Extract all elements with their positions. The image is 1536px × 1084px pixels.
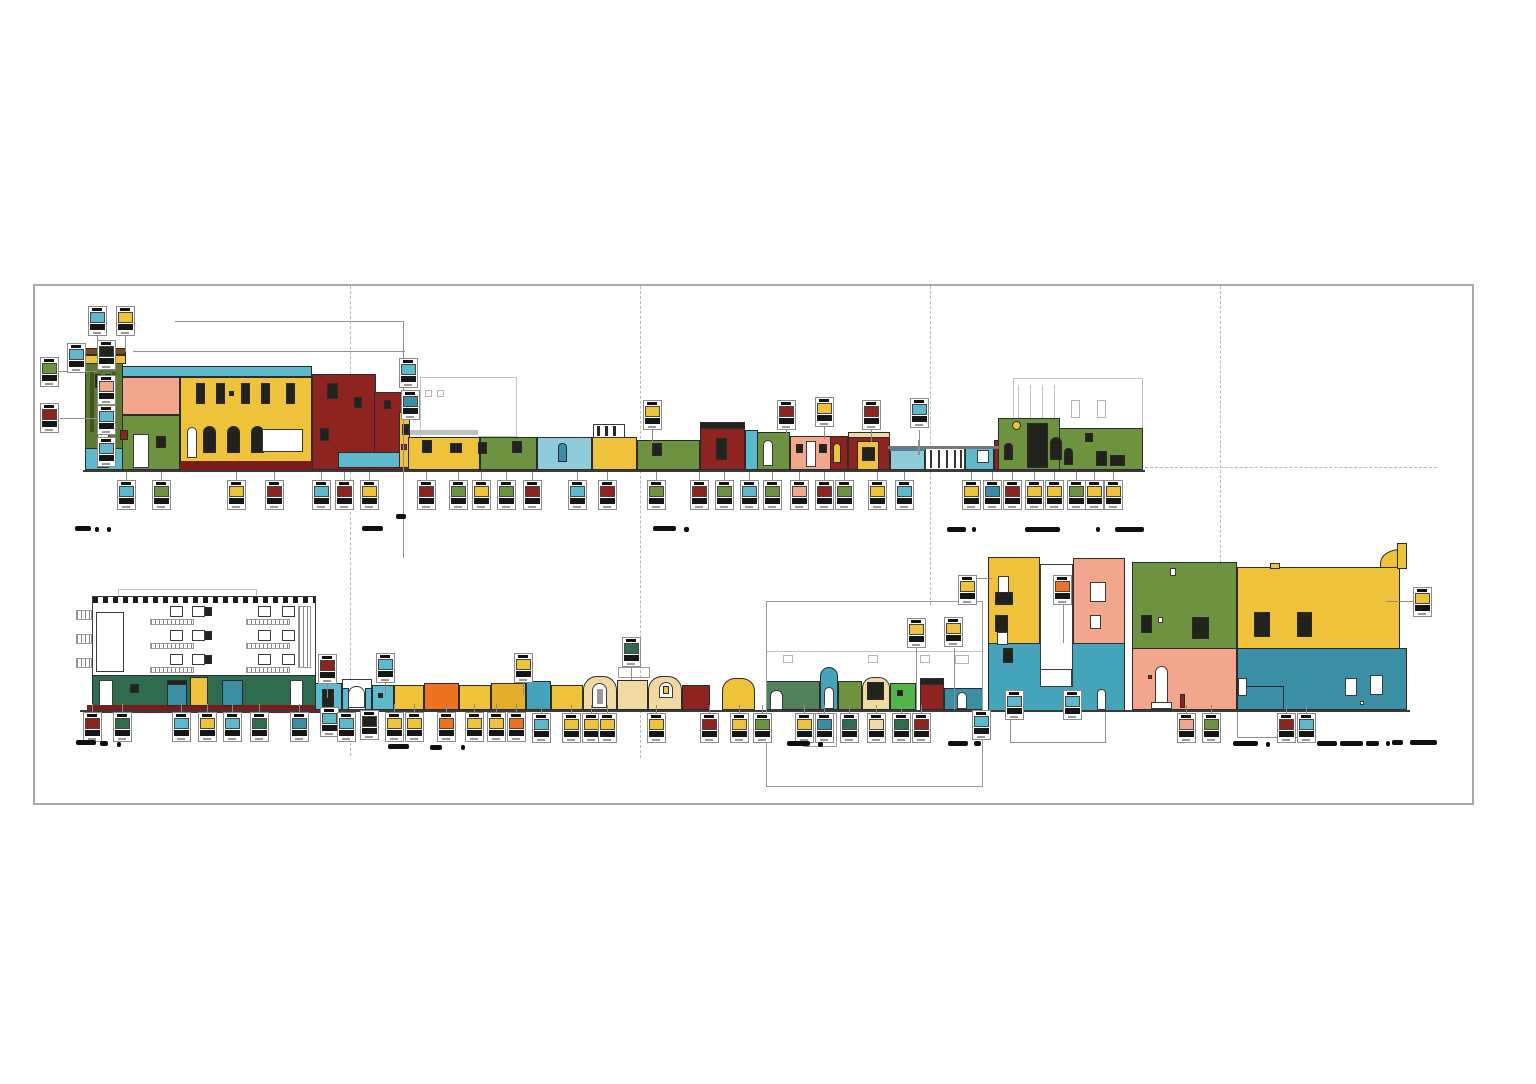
- tag-part: [325, 733, 333, 735]
- tag-part: [962, 577, 972, 580]
- tag-leader-line: [125, 336, 126, 352]
- building-detail: [1155, 666, 1168, 704]
- tag-part: [122, 506, 130, 508]
- tag-part: [704, 715, 714, 718]
- tag-part: [403, 408, 418, 414]
- building-detail: [196, 383, 205, 404]
- color-tag: [507, 712, 526, 742]
- tag-part: [837, 486, 852, 497]
- tag-leader-line: [739, 705, 740, 713]
- building-detail: [401, 444, 407, 450]
- tag-part: [692, 498, 707, 504]
- building-detail: [1090, 615, 1101, 629]
- tag-part: [292, 718, 307, 729]
- tag-part: [732, 731, 747, 737]
- tag-part: [1108, 482, 1118, 485]
- caption-text-blob: [396, 514, 406, 519]
- building-detail: [1345, 678, 1357, 696]
- leader-line: [631, 666, 632, 680]
- tag-leader-line: [656, 705, 657, 713]
- leader-line: [403, 321, 404, 558]
- tag-leader-line: [446, 704, 447, 712]
- color-tag: [862, 400, 881, 430]
- tag-part: [99, 346, 114, 357]
- tag-part: [44, 359, 54, 362]
- tag-part: [322, 725, 337, 731]
- tag-part: [649, 498, 664, 504]
- tag-part: [896, 715, 906, 718]
- building-detail: [378, 693, 383, 698]
- building-detail: [241, 383, 250, 404]
- color-tag: [1067, 480, 1086, 510]
- tag-part: [1007, 708, 1022, 714]
- tag-part: [624, 643, 639, 654]
- color-tag: [962, 480, 981, 510]
- tag-leader-line: [699, 472, 700, 480]
- tag-part: [1065, 696, 1080, 707]
- building-detail: [120, 430, 128, 440]
- tag-part: [93, 332, 101, 334]
- tag-part: [528, 506, 536, 508]
- tag-part: [820, 506, 828, 508]
- caption-text-blob: [1386, 741, 1390, 746]
- caption-text-blob: [653, 526, 676, 531]
- tag-part: [870, 486, 885, 497]
- tag-part: [225, 730, 240, 736]
- tag-part: [1106, 498, 1121, 504]
- tag-part: [1055, 593, 1070, 599]
- building-detail: [1027, 423, 1048, 468]
- building-detail: [1360, 701, 1364, 705]
- elevation-sheet-canvas: [0, 0, 1536, 1084]
- building-block: [122, 415, 180, 470]
- building-detail: [150, 619, 194, 625]
- caption-text-blob: [787, 741, 810, 746]
- tag-part: [649, 719, 664, 730]
- tag-part: [912, 644, 920, 646]
- tag-part: [409, 714, 419, 717]
- tag-part: [869, 719, 884, 730]
- tag-part: [819, 482, 829, 485]
- tag-part: [90, 324, 105, 330]
- building-detail: [819, 444, 827, 453]
- building-detail: [1158, 617, 1163, 623]
- leader-line: [175, 321, 404, 322]
- color-tag: [910, 398, 929, 428]
- tag-leader-line: [496, 704, 497, 712]
- caption-text-blob: [95, 527, 99, 532]
- tag-part: [873, 506, 881, 508]
- tag-leader-line: [901, 705, 902, 713]
- tag-part: [203, 738, 211, 740]
- building-block: [459, 685, 491, 710]
- tag-part: [600, 731, 615, 737]
- building-detail: [997, 632, 1008, 645]
- color-tag: [647, 480, 666, 510]
- tag-leader-line: [274, 472, 275, 480]
- tag-part: [1281, 715, 1291, 718]
- tag-leader-line: [921, 705, 922, 713]
- tag-part: [337, 498, 352, 504]
- tag-part: [339, 730, 354, 736]
- color-tag: [97, 405, 116, 435]
- tag-part: [1050, 506, 1058, 508]
- tag-part: [451, 486, 466, 497]
- color-tag: [647, 713, 666, 743]
- tag-part: [314, 486, 329, 497]
- tag-part: [101, 439, 111, 442]
- building-detail: [298, 606, 311, 668]
- tag-part: [916, 715, 926, 718]
- tag-part: [405, 392, 415, 395]
- tag-leader-line: [1012, 472, 1013, 480]
- color-tag: [1025, 480, 1044, 510]
- tag-part: [869, 731, 884, 737]
- tag-part: [403, 396, 418, 407]
- color-tag: [912, 713, 931, 743]
- tag-part: [600, 486, 615, 497]
- tag-part: [914, 731, 929, 737]
- tag-part: [964, 486, 979, 497]
- tag-part: [269, 482, 279, 485]
- tag-part: [527, 482, 537, 485]
- tag-leader-line: [516, 704, 517, 712]
- tag-part: [157, 506, 165, 508]
- tag-leader-line: [481, 472, 482, 480]
- tag-part: [602, 482, 612, 485]
- tag-part: [403, 360, 413, 363]
- building-detail: [938, 450, 940, 468]
- tag-part: [915, 424, 923, 426]
- building-detail: [286, 383, 295, 404]
- tag-part: [470, 738, 478, 740]
- tag-part: [870, 498, 885, 504]
- tag-part: [453, 482, 463, 485]
- tag-part: [419, 486, 434, 497]
- building-detail: [888, 446, 1000, 449]
- tag-part: [976, 712, 986, 715]
- tag-leader-line: [232, 704, 233, 712]
- tag-leader-line: [321, 472, 322, 480]
- tag-part: [720, 506, 728, 508]
- tag-leader-line: [799, 472, 800, 480]
- tag-part: [867, 426, 875, 428]
- tag-part: [872, 482, 882, 485]
- building-detail: [167, 680, 187, 685]
- tag-part: [525, 486, 540, 497]
- color-tag: [514, 653, 533, 683]
- tag-part: [85, 730, 100, 736]
- tag-leader-line: [656, 472, 657, 480]
- tag-leader-line: [971, 472, 972, 480]
- tag-part: [121, 482, 131, 485]
- color-tag: [892, 713, 911, 743]
- building-block: [1132, 562, 1237, 649]
- caption-text-blob: [362, 526, 383, 531]
- tag-part: [516, 671, 531, 677]
- background-line: [118, 589, 119, 596]
- tag-leader-line: [1306, 705, 1307, 713]
- background-window: [1097, 400, 1106, 418]
- tag-part: [866, 402, 876, 405]
- tag-part: [692, 486, 707, 497]
- leader-line: [918, 440, 919, 455]
- tag-part: [101, 342, 111, 345]
- tag-part: [987, 482, 997, 485]
- building-detail: [170, 606, 183, 617]
- tag-part: [745, 506, 753, 508]
- building-detail: [1148, 675, 1152, 679]
- color-tag: [568, 480, 587, 510]
- color-tag: [700, 713, 719, 743]
- caption-text-blob: [1025, 527, 1060, 532]
- color-tag: [867, 713, 886, 743]
- building-detail: [1064, 448, 1073, 465]
- building-detail: [1170, 568, 1176, 576]
- tag-leader-line: [541, 705, 542, 713]
- tag-leader-line: [749, 472, 750, 480]
- tag-leader-line: [844, 472, 845, 480]
- tag-part: [362, 486, 377, 497]
- tag-part: [42, 421, 57, 427]
- tag-part: [401, 364, 416, 375]
- leader-line: [1386, 601, 1413, 602]
- tag-part: [1047, 486, 1062, 497]
- color-tag: [88, 306, 107, 336]
- ground-line: [83, 470, 1145, 472]
- color-tag: [740, 480, 759, 510]
- tag-part: [387, 718, 402, 729]
- tag-leader-line: [1076, 472, 1077, 480]
- tag-part: [410, 738, 418, 740]
- tag-part: [627, 663, 635, 665]
- tag-part: [474, 486, 489, 497]
- caption-text-blob: [1317, 741, 1337, 746]
- building-detail: [130, 684, 139, 693]
- tag-part: [295, 738, 303, 740]
- tag-part: [587, 739, 595, 741]
- tag-part: [477, 506, 485, 508]
- building-detail: [190, 677, 208, 706]
- building-detail: [384, 400, 391, 409]
- color-tag: [815, 480, 834, 510]
- tag-part: [117, 714, 127, 717]
- tag-part: [364, 712, 374, 715]
- tag-part: [536, 715, 546, 718]
- tag-part: [1058, 601, 1066, 603]
- tag-part: [42, 363, 57, 374]
- tag-part: [702, 719, 717, 730]
- building-block: [1397, 543, 1407, 569]
- tag-part: [652, 506, 660, 508]
- building-detail: [203, 426, 216, 453]
- building-detail: [862, 447, 875, 461]
- caption-text-blob: [1392, 740, 1403, 745]
- tag-part: [1057, 577, 1067, 580]
- building-detail: [652, 443, 662, 456]
- color-tag: [312, 480, 331, 510]
- tag-part: [87, 714, 97, 717]
- building-detail: [156, 436, 166, 448]
- caption-text-blob: [76, 740, 96, 745]
- leader-line: [60, 418, 97, 419]
- tag-part: [202, 714, 212, 717]
- color-tag: [1045, 480, 1064, 510]
- color-tag: [907, 618, 926, 648]
- leader-line: [1237, 712, 1238, 738]
- building-detail: [192, 654, 205, 665]
- tag-part: [768, 506, 776, 508]
- tag-part: [362, 728, 377, 734]
- tag-part: [442, 738, 450, 740]
- tag-part: [389, 714, 399, 717]
- tag-part: [624, 655, 639, 661]
- color-tag: [1413, 587, 1432, 617]
- tag-part: [1010, 716, 1018, 718]
- building-detail: [170, 630, 183, 641]
- tag-part: [1089, 482, 1099, 485]
- building-detail: [1238, 678, 1247, 696]
- tag-part: [909, 624, 924, 635]
- background-line: [408, 430, 478, 435]
- color-tag: [895, 480, 914, 510]
- tag-part: [340, 506, 348, 508]
- tag-part: [844, 715, 854, 718]
- tag-part: [1065, 708, 1080, 714]
- tag-part: [1415, 593, 1430, 604]
- tag-part: [341, 714, 351, 717]
- color-tag: [172, 712, 191, 742]
- tag-part: [509, 730, 524, 736]
- tag-part: [1071, 482, 1081, 485]
- tag-part: [1049, 482, 1059, 485]
- tag-leader-line: [394, 704, 395, 712]
- color-tag: [360, 480, 379, 510]
- tag-part: [90, 312, 105, 323]
- tag-part: [819, 399, 829, 402]
- tag-part: [499, 486, 514, 497]
- building-detail: [946, 450, 948, 468]
- caption-text-blob: [684, 527, 689, 532]
- tag-part: [1179, 731, 1194, 737]
- tag-part: [988, 506, 996, 508]
- tag-part: [964, 498, 979, 504]
- color-tag: [622, 637, 641, 667]
- background-line: [118, 589, 257, 590]
- tag-part: [914, 400, 924, 403]
- tag-part: [570, 486, 585, 497]
- tag-part: [757, 715, 767, 718]
- color-tag: [399, 358, 418, 388]
- tag-part: [1030, 506, 1038, 508]
- tag-part: [649, 486, 664, 497]
- tag-part: [735, 739, 743, 741]
- tag-part: [564, 731, 579, 737]
- tag-part: [380, 655, 390, 658]
- building-detail: [806, 441, 816, 467]
- tag-leader-line: [824, 705, 825, 713]
- tag-part: [705, 739, 713, 741]
- building-detail: [261, 383, 270, 404]
- building-detail: [282, 630, 295, 641]
- tag-leader-line: [122, 704, 123, 712]
- building-detail: [1040, 669, 1072, 687]
- tag-part: [974, 728, 989, 734]
- tag-part: [702, 731, 717, 737]
- tag-part: [795, 506, 803, 508]
- building-detail: [930, 450, 932, 468]
- tag-part: [200, 730, 215, 736]
- tag-leader-line: [299, 704, 300, 712]
- tag-part: [645, 406, 660, 417]
- tag-part: [119, 486, 134, 497]
- building-block: [1270, 563, 1280, 569]
- building-detail: [90, 372, 94, 432]
- tag-part: [1067, 692, 1077, 695]
- tag-part: [476, 482, 486, 485]
- tag-leader-line: [506, 472, 507, 480]
- tag-part: [602, 715, 612, 718]
- tag-part: [102, 463, 110, 465]
- annotation-box: [618, 667, 650, 678]
- tag-leader-line: [1054, 472, 1055, 480]
- tag-part: [948, 619, 958, 622]
- tag-leader-line: [824, 472, 825, 480]
- tag-part: [792, 486, 807, 497]
- tag-part: [378, 671, 393, 677]
- leader-line: [1063, 600, 1064, 643]
- color-tag: [116, 306, 135, 336]
- building-detail: [192, 630, 205, 641]
- tag-part: [200, 718, 215, 729]
- building-block: [592, 437, 637, 470]
- tag-part: [537, 739, 545, 741]
- tag-part: [99, 358, 114, 364]
- tag-part: [292, 730, 307, 736]
- color-tag: [405, 712, 424, 742]
- tag-leader-line: [1094, 472, 1095, 480]
- building-detail: [995, 592, 1013, 605]
- tag-part: [1299, 731, 1314, 737]
- building-detail: [1096, 451, 1107, 466]
- building-detail: [1192, 617, 1209, 639]
- tag-leader-line: [607, 472, 608, 480]
- tag-part: [897, 486, 912, 497]
- tag-leader-line: [414, 704, 415, 712]
- tag-part: [985, 498, 1000, 504]
- tag-part: [1299, 719, 1314, 730]
- tag-part: [782, 426, 790, 428]
- tag-leader-line: [1286, 705, 1287, 713]
- tag-part: [316, 482, 326, 485]
- building-detail: [282, 606, 295, 617]
- leader-line: [1010, 742, 1106, 743]
- tag-part: [267, 498, 282, 504]
- tag-leader-line: [259, 704, 260, 712]
- tag-leader-line: [577, 472, 578, 480]
- building-detail: [76, 610, 92, 620]
- caption-text-blob: [974, 741, 981, 746]
- tag-part: [626, 639, 636, 642]
- tag-part: [985, 486, 1000, 497]
- building-detail: [258, 654, 271, 665]
- color-tag: [437, 712, 456, 742]
- tag-part: [516, 659, 531, 670]
- building-detail: [995, 615, 1008, 632]
- tag-part: [914, 719, 929, 730]
- dashed-gridline-horizontal: [1145, 467, 1437, 468]
- tag-part: [1069, 498, 1084, 504]
